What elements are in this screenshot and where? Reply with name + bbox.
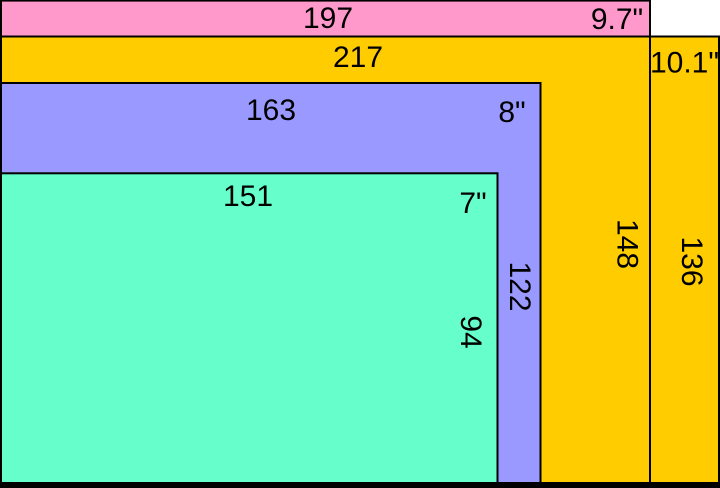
svg-text:151: 151 (223, 180, 273, 213)
svg-text:217: 217 (333, 41, 383, 74)
svg-text:9.7": 9.7" (591, 3, 643, 36)
svg-text:148: 148 (611, 219, 644, 269)
svg-text:122: 122 (503, 261, 536, 311)
svg-text:7": 7" (459, 187, 486, 220)
svg-text:10.1": 10.1" (650, 47, 719, 80)
svg-text:136: 136 (675, 236, 708, 286)
svg-text:94: 94 (454, 315, 487, 348)
svg-text:163: 163 (246, 94, 296, 127)
svg-text:8": 8" (498, 96, 525, 129)
svg-text:197: 197 (303, 2, 353, 35)
